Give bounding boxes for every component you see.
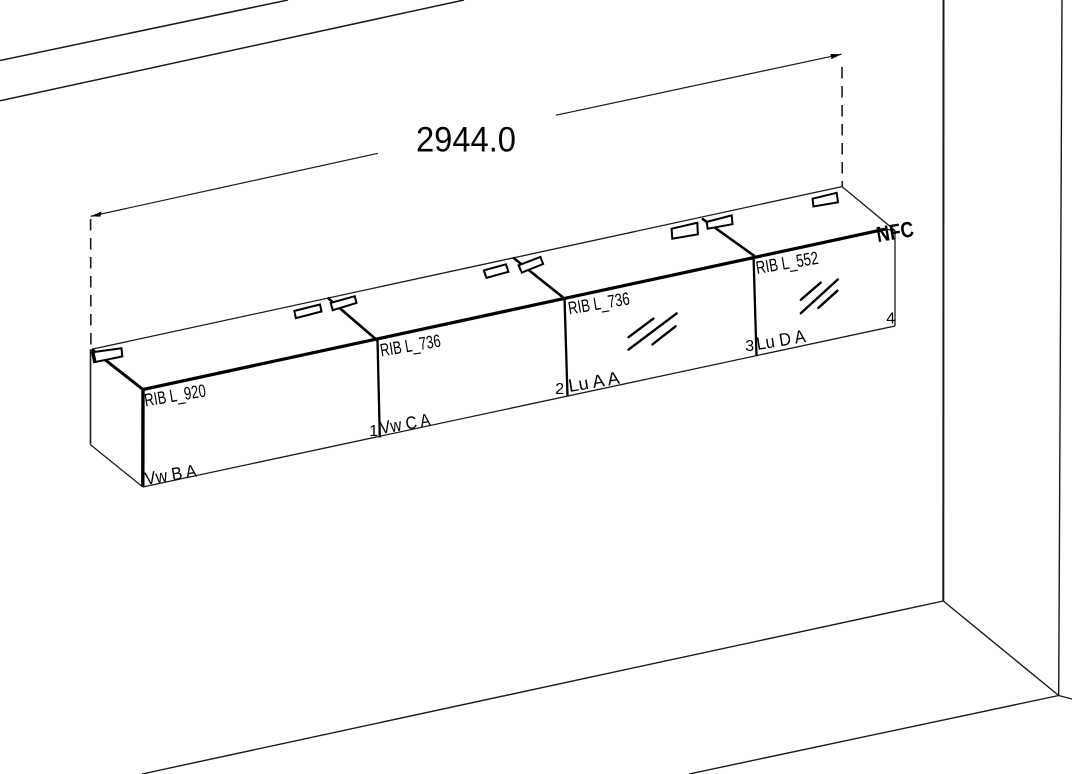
svg-text:4: 4 bbox=[886, 311, 895, 328]
svg-text:3: 3 bbox=[745, 338, 754, 355]
svg-text:2: 2 bbox=[555, 381, 564, 398]
svg-text:2944.0: 2944.0 bbox=[416, 121, 516, 160]
svg-text:1: 1 bbox=[369, 423, 378, 440]
